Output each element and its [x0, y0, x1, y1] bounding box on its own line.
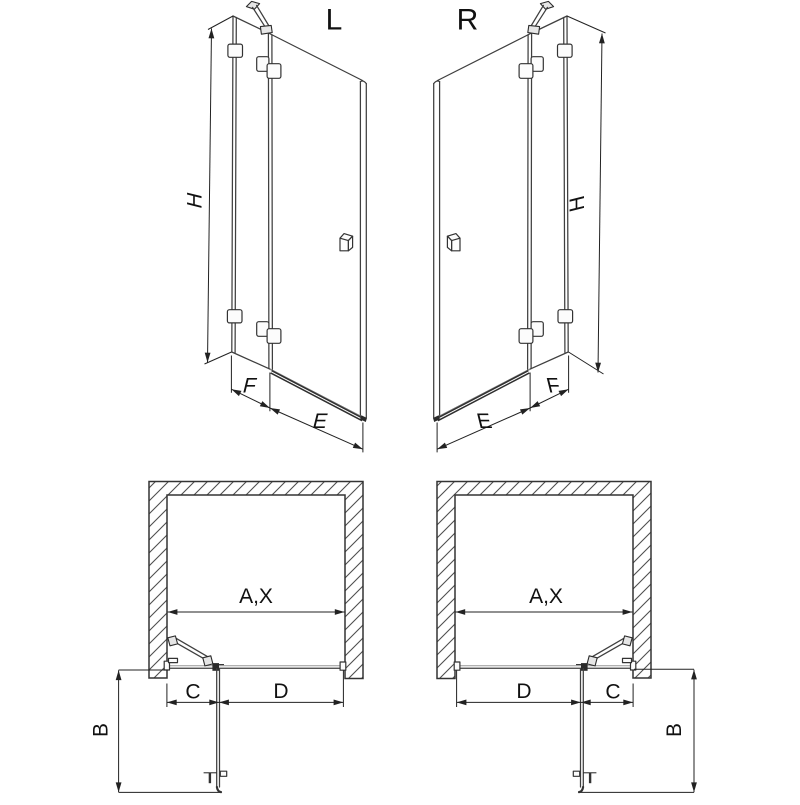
height-dim-line-left [208, 29, 212, 363]
wall-plan-left [149, 482, 363, 679]
door-segment-dim-label-right: D [516, 680, 531, 703]
niche-width-dim-label-right: A,X [529, 585, 563, 608]
variant-label-left: L [326, 4, 343, 37]
swing-depth-ref-lines-left [119, 670, 220, 792]
swing-depth-dim-label-left: B [90, 723, 113, 737]
wall-plan-right [437, 482, 651, 679]
dimension-b-left [119, 670, 220, 792]
elevation-left-view: L H F E [183, 1, 367, 452]
niche-width-dim-label-left: A,X [239, 585, 273, 608]
door-width-dim-label-right: E [474, 409, 494, 433]
fixed-width-dim-label-right: F [544, 374, 563, 398]
fixed-segment-dim-label-right: C [605, 681, 620, 704]
door-segment-dim-label-left: D [273, 680, 288, 703]
height-dim-line-right [598, 34, 602, 373]
height-dim-label-right: H [565, 193, 589, 214]
plan-left-view: A,X C D B [90, 482, 364, 793]
plan-right-view: A,X D C B [437, 482, 694, 793]
door-width-dim-label-left: E [310, 409, 330, 433]
fixed-segment-dim-label-left: C [185, 681, 200, 704]
technical-diagram-page: L H F E R H E F A,X C D B [0, 0, 800, 800]
height-dim-label-left: H [183, 190, 207, 211]
fixed-width-dim-label-left: F [240, 374, 259, 398]
elevation-right-view: R H E F [433, 1, 606, 452]
variant-label-right: R [457, 4, 479, 37]
swing-depth-dim-label-right: B [663, 723, 686, 737]
shower-door-technical-diagram: L H F E R H E F A,X C D B [0, 0, 800, 800]
